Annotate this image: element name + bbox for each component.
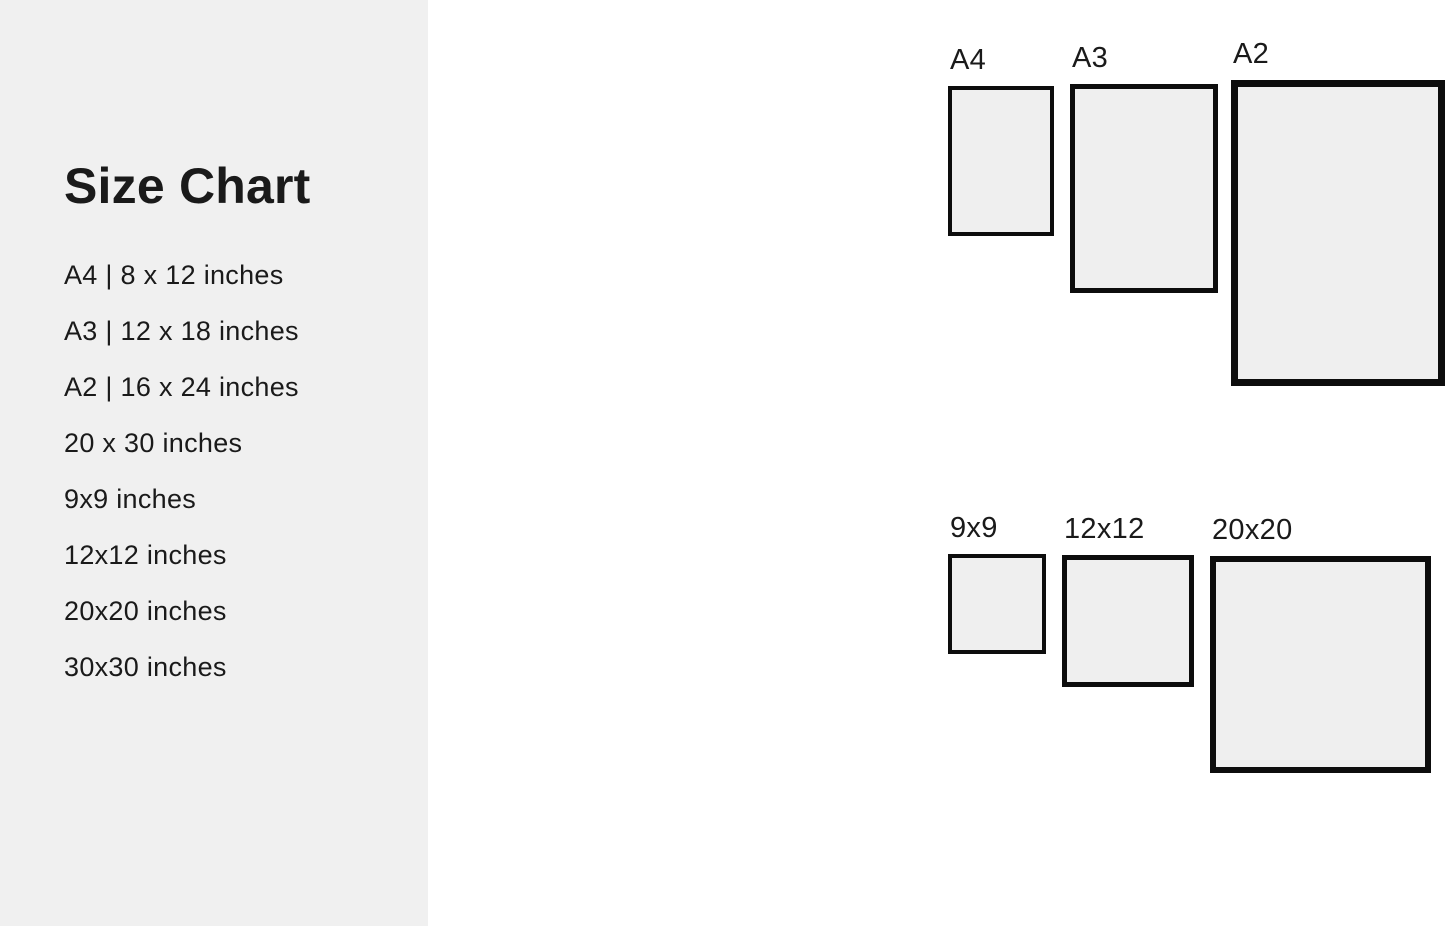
frame-label-9x9: 9x9 <box>950 512 998 544</box>
frame-a3 <box>1070 84 1218 293</box>
size-list-item-30x30: 30x30 inches <box>64 639 428 695</box>
size-item-a3: A3 <box>1070 42 1218 293</box>
frame-a2 <box>1231 80 1445 386</box>
frame-label-12x12: 12x12 <box>1064 513 1145 545</box>
size-list-item-20x30: 20 x 30 inches <box>64 415 428 471</box>
frame-label-20x20: 20x20 <box>1212 514 1293 546</box>
size-item-a2: A2 <box>1231 38 1445 386</box>
size-chart-infographic: Size Chart A4 | 8 x 12 inches A3 | 12 x … <box>0 0 1445 926</box>
frame-20x20 <box>1210 556 1431 773</box>
size-list-item-a4: A4 | 8 x 12 inches <box>64 247 428 303</box>
size-list-item-9x9: 9x9 inches <box>64 471 428 527</box>
frame-label-a2: A2 <box>1233 38 1269 70</box>
size-item-20x20: 20x20 <box>1210 514 1431 773</box>
size-item-9x9: 9x9 <box>948 512 1046 654</box>
frame-label-a4: A4 <box>950 44 986 76</box>
size-item-a4: A4 <box>948 44 1054 236</box>
size-list-item-20x20: 20x20 inches <box>64 583 428 639</box>
frames-area: A4 A3 A2 20x30 9x9 12x12 20x20 3 <box>428 0 1445 926</box>
frame-label-a3: A3 <box>1072 42 1108 74</box>
frame-a4 <box>948 86 1054 236</box>
sidebar: Size Chart A4 | 8 x 12 inches A3 | 12 x … <box>0 0 428 926</box>
size-list-item-a3: A3 | 12 x 18 inches <box>64 303 428 359</box>
frame-9x9 <box>948 554 1046 654</box>
size-list: A4 | 8 x 12 inches A3 | 12 x 18 inches A… <box>64 247 428 695</box>
page-title: Size Chart <box>64 158 428 215</box>
size-list-item-12x12: 12x12 inches <box>64 527 428 583</box>
size-list-item-a2: A2 | 16 x 24 inches <box>64 359 428 415</box>
frame-12x12 <box>1062 555 1194 687</box>
size-item-12x12: 12x12 <box>1062 513 1194 687</box>
